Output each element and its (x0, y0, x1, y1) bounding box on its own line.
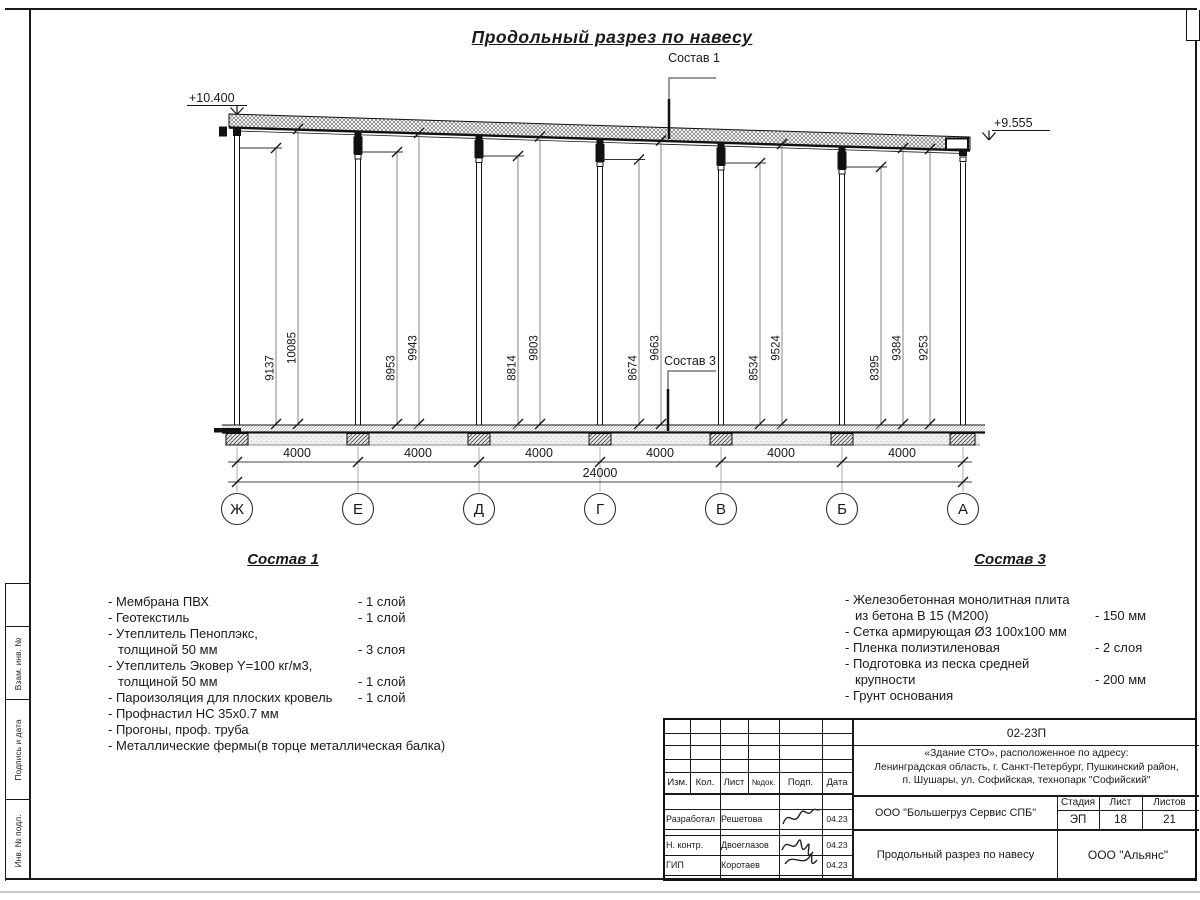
list-item: - Пленка полиэтиленовая- 2 слоя (845, 640, 1185, 656)
svg-text:4000: 4000 (888, 446, 916, 460)
svg-text:10085: 10085 (287, 332, 299, 364)
svg-text:Е: Е (353, 501, 363, 518)
frame-top (5, 8, 1197, 10)
roof-left-bracket (219, 127, 227, 137)
side-stamp: Взам. инв. № Подпись и дата Инв. № подл. (5, 583, 30, 881)
sostav3-heading: Состав 3 (845, 551, 1175, 568)
tb-line (665, 793, 852, 795)
svg-text:8814: 8814 (507, 355, 519, 381)
sostav3-list: - Железобетонная монолитная плита из бет… (845, 592, 1185, 704)
svg-text:Д: Д (474, 501, 484, 518)
tb-date: 04.23 (822, 809, 852, 829)
list-item: толщиной 50 мм- 1 слой (108, 674, 478, 690)
svg-text:В: В (716, 501, 726, 518)
tb-header-list: Лист (720, 772, 748, 793)
tb-address-line: п. Шушары, ул. Софийская, технопарк "Соф… (854, 774, 1199, 788)
list-item: - Грунт основания (845, 688, 1185, 704)
svg-text:+10.400: +10.400 (189, 91, 235, 105)
tb-stage-label: Стадия (1057, 795, 1099, 810)
drawing-sheet: 9137 10085 8953 9943 8814 9803 8674 9663… (0, 0, 1200, 900)
truss-chord-stubs (240, 148, 887, 167)
list-item: - Профнастил НС 35х0.7 мм (108, 706, 478, 722)
side-stamp-cell: Подпись и дата (6, 699, 30, 800)
list-item: крупности- 200 мм (845, 672, 1185, 688)
svg-text:8534: 8534 (749, 355, 761, 381)
tb-header-ndok: №док. (748, 772, 779, 793)
tb-address: «Здание СТО», расположенное по адресу: Л… (854, 747, 1199, 795)
page-edge-line (0, 891, 1200, 893)
columns (233, 128, 967, 425)
tb-sheet-title: Продольный разрез по навесу (854, 831, 1057, 879)
tb-header-data: Дата (822, 772, 852, 793)
svg-text:9253: 9253 (919, 335, 931, 361)
list-item: - Железобетонная монолитная плита (845, 592, 1185, 608)
side-stamp-cell (6, 584, 30, 626)
tb-sheet-value: 18 (1099, 810, 1142, 829)
tb-header-kol: Кол. (690, 772, 720, 793)
list-item: - Мембрана ПВХ- 1 слой (108, 594, 478, 610)
tb-name: Коротаев (721, 855, 779, 875)
list-item: из бетона В 15 (М200)- 150 мм (845, 608, 1185, 624)
list-item: - Пароизоляция для плоских кровель- 1 сл… (108, 690, 478, 706)
tb-address-line: «Здание СТО», расположенное по адресу: (854, 747, 1199, 761)
elevation-mark-right: +9.555 (983, 116, 1051, 140)
list-item: - Подготовка из песка средней (845, 656, 1185, 672)
svg-text:9943: 9943 (408, 335, 420, 361)
svg-text:4000: 4000 (525, 446, 553, 460)
svg-text:9524: 9524 (771, 335, 783, 361)
sostav1-heading: Состав 1 (108, 551, 458, 568)
svg-text:8395: 8395 (870, 355, 882, 381)
list-item: толщиной 50 мм- 3 слоя (108, 642, 478, 658)
side-stamp-cell: Инв. № подл. (6, 799, 30, 882)
tb-sheet-label: Лист (1099, 795, 1142, 810)
svg-text:4000: 4000 (646, 446, 674, 460)
list-item: - Утеплитель Пеноплэкс, (108, 626, 478, 642)
svg-text:9803: 9803 (529, 335, 541, 361)
svg-text:Б: Б (837, 501, 847, 518)
sostav3-callout: Состав 3 (664, 354, 716, 431)
svg-text:Г: Г (596, 501, 604, 518)
tb-role: ГИП (666, 855, 720, 875)
svg-text:+9.555: +9.555 (994, 116, 1033, 130)
list-item: - Сетка армирующая Ø3 100х100 мм (845, 624, 1185, 640)
tb-header-podp: Подп. (779, 772, 822, 793)
svg-text:8674: 8674 (628, 355, 640, 381)
tb-sheets-label: Листов (1142, 795, 1197, 810)
list-item: - Утеплитель Эковер Y=100 кг/м3, (108, 658, 478, 674)
tb-line (665, 733, 852, 734)
signature-icon (779, 802, 822, 878)
side-stamp-cell: Взам. инв. № (6, 626, 30, 700)
tb-role: Н. контр. (666, 835, 720, 855)
corner-stamp-box (1186, 10, 1200, 41)
svg-text:4000: 4000 (283, 446, 311, 460)
sostav1-list: - Мембрана ПВХ- 1 слой - Геотекстиль- 1 … (108, 594, 478, 754)
elevation-mark-left: +10.400 (187, 91, 247, 115)
roof-end-beam (946, 139, 968, 150)
page-title: Продольный разрез по навесу (412, 27, 812, 48)
total-dim-label: 24000 (583, 466, 618, 480)
sostav1-callout: Состав 1 (668, 51, 720, 139)
tb-line (852, 745, 1199, 746)
tb-line (665, 759, 852, 760)
svg-text:Ж: Ж (230, 501, 244, 518)
bay-dim-labels: 4000 4000 4000 4000 4000 4000 (283, 446, 916, 460)
axis-bubbles: Ж Е Д Г В Б А (222, 494, 979, 525)
list-item: - Металлические фермы(в торце металличес… (108, 738, 478, 754)
svg-text:8953: 8953 (386, 355, 398, 381)
tb-org: ООО "Альянс" (1057, 831, 1199, 879)
svg-text:4000: 4000 (404, 446, 432, 460)
svg-text:Состав 1: Состав 1 (668, 51, 720, 65)
svg-text:9663: 9663 (650, 335, 662, 361)
svg-text:4000: 4000 (767, 446, 795, 460)
svg-text:9384: 9384 (892, 335, 904, 361)
tb-doc-number: 02-23П (854, 720, 1199, 745)
tb-address-line: Ленинградская область, г. Санкт-Петербур… (854, 761, 1199, 775)
tb-company: ООО "Большегруз Сервис СПБ" (854, 797, 1057, 829)
list-item: - Геотекстиль- 1 слой (108, 610, 478, 626)
roof-band (219, 114, 970, 154)
tb-date: 04.23 (822, 835, 852, 855)
svg-text:9137: 9137 (265, 355, 277, 381)
tb-name: Решетова (721, 809, 779, 829)
tb-role: Разработал (666, 809, 720, 829)
ground-slab (214, 425, 985, 445)
tb-sheets-value: 21 (1142, 810, 1197, 829)
tb-line (665, 829, 852, 830)
tb-line (665, 875, 852, 876)
tb-line (665, 745, 852, 746)
list-item: - Прогоны, проф. труба (108, 722, 478, 738)
tb-stage-value: ЭП (1057, 810, 1099, 829)
tb-date: 04.23 (822, 855, 852, 875)
tb-name: Двоеглазов (721, 835, 779, 855)
title-block: Изм. Кол. Лист №док. Подп. Дата Разработ… (663, 718, 1197, 881)
bottom-dim-chain: 4000 4000 4000 4000 4000 4000 24000 (228, 446, 972, 492)
tb-header-izm: Изм. (665, 772, 690, 793)
svg-text:Состав 3: Состав 3 (664, 354, 716, 368)
svg-text:А: А (958, 501, 968, 518)
